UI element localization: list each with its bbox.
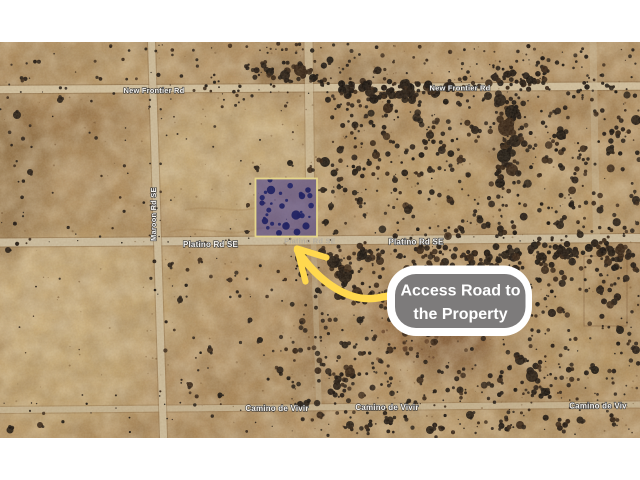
svg-text:Access Road to: Access Road to [400,283,520,300]
svg-text:Platino Rd SE: Platino Rd SE [183,240,239,249]
svg-text:Camino de Viv: Camino de Viv [569,402,627,411]
svg-text:New Frontier Rd: New Frontier Rd [430,84,491,93]
svg-text:Platino Rd SE: Platino Rd SE [284,237,336,246]
svg-text:Camino de Vivir: Camino de Vivir [355,403,418,412]
svg-text:Maroon Rd SE: Maroon Rd SE [149,187,158,241]
svg-text:Camino de Vivir: Camino de Vivir [245,404,308,413]
svg-text:Platino Rd SE: Platino Rd SE [388,238,444,247]
svg-text:the Property: the Property [413,306,507,323]
svg-text:New Frontier Rd: New Frontier Rd [124,86,185,95]
